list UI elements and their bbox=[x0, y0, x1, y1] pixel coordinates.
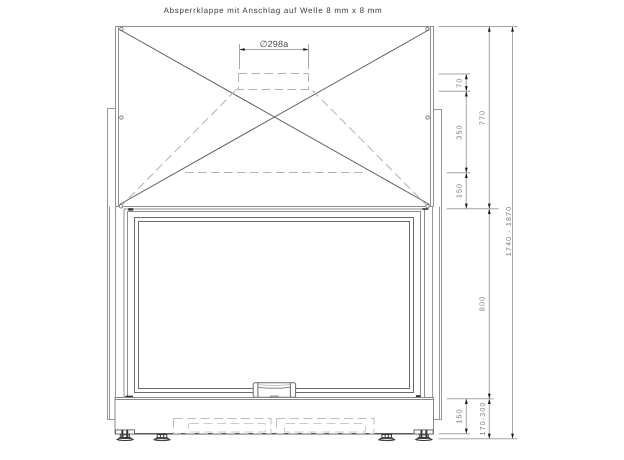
svg-text:1740 - 1870: 1740 - 1870 bbox=[504, 206, 513, 256]
svg-text:∅298a: ∅298a bbox=[260, 39, 289, 49]
svg-text:350: 350 bbox=[454, 124, 463, 139]
svg-text:170-300: 170-300 bbox=[478, 401, 487, 435]
svg-text:Absperrklappe mit Anschlag auf: Absperrklappe mit Anschlag auf Welle 8 m… bbox=[164, 6, 383, 15]
svg-text:150: 150 bbox=[454, 183, 463, 198]
svg-text:150: 150 bbox=[454, 408, 463, 423]
svg-text:70: 70 bbox=[454, 77, 463, 87]
svg-text:800: 800 bbox=[477, 296, 486, 311]
svg-text:770: 770 bbox=[477, 110, 486, 125]
